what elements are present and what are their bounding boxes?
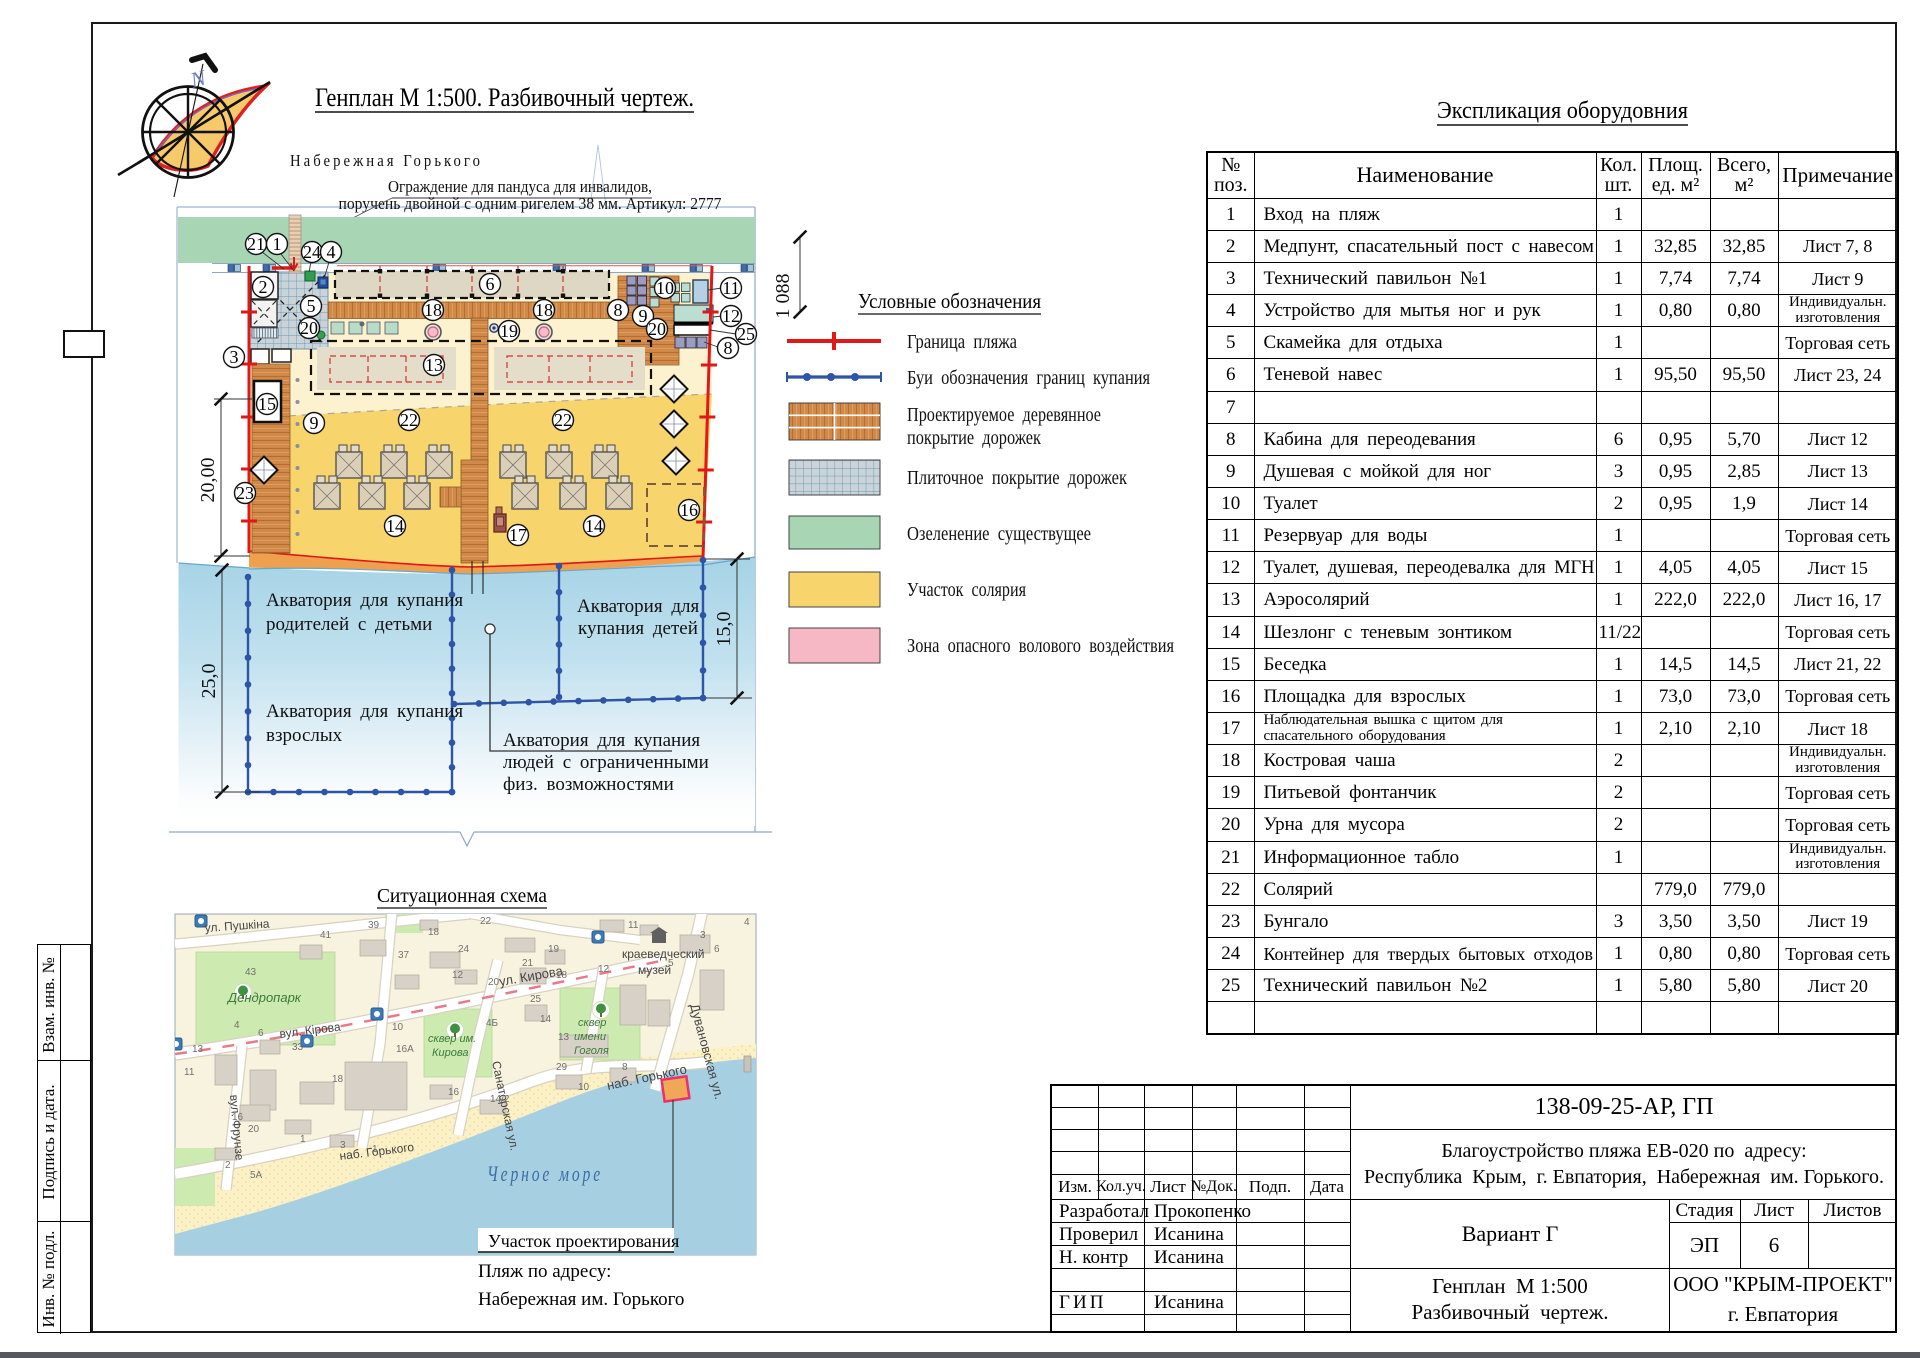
svg-text:24: 24: [458, 944, 470, 955]
svg-text:5: 5: [668, 958, 674, 969]
svg-text:10: 10: [578, 1082, 590, 1093]
svg-text:Набережная Горького: Набережная Горького: [290, 151, 483, 170]
svg-text:7: 7: [645, 970, 651, 981]
svg-text:6: 6: [258, 1028, 264, 1039]
svg-text:2: 2: [225, 1160, 231, 1171]
svg-text:Пляж по адресу:: Пляж по адресу:: [478, 1261, 611, 1282]
svg-text:людей с ограниченными: людей с ограниченными: [503, 752, 709, 773]
svg-text:4: 4: [327, 242, 336, 262]
svg-text:N: N: [187, 64, 210, 93]
svg-text:9: 9: [310, 413, 319, 433]
svg-text:15,0: 15,0: [713, 612, 735, 647]
svg-text:24: 24: [303, 242, 321, 262]
svg-text:19: 19: [500, 321, 518, 341]
svg-text:1: 1: [300, 1134, 306, 1145]
svg-text:Дендропарк: Дендропарк: [226, 990, 302, 1005]
svg-text:25,0: 25,0: [198, 664, 220, 699]
svg-text:музей: музей: [638, 963, 671, 977]
svg-text:13: 13: [425, 355, 443, 375]
svg-text:11: 11: [722, 278, 739, 298]
svg-text:14: 14: [585, 516, 603, 536]
svg-text:Условные обозначения: Условные обозначения: [858, 289, 1041, 313]
svg-text:16: 16: [680, 500, 698, 520]
svg-text:4Б: 4Б: [486, 1018, 499, 1029]
svg-text:41: 41: [320, 930, 332, 941]
svg-text:12: 12: [452, 970, 464, 981]
svg-text:22: 22: [400, 410, 418, 430]
svg-text:13: 13: [558, 1032, 570, 1043]
svg-text:сквер: сквер: [578, 1017, 606, 1029]
svg-text:4: 4: [234, 1020, 240, 1031]
svg-text:4: 4: [744, 917, 750, 928]
svg-text:3: 3: [230, 347, 239, 367]
svg-text:Акватория для купания: Акватория для купания: [266, 590, 463, 611]
svg-text:20: 20: [488, 977, 500, 988]
svg-text:8: 8: [724, 338, 733, 358]
svg-text:12: 12: [598, 964, 610, 975]
svg-text:21: 21: [522, 958, 534, 969]
svg-text:10: 10: [392, 1022, 404, 1033]
svg-text:5: 5: [307, 296, 316, 316]
svg-text:3: 3: [700, 930, 706, 941]
svg-text:1 088: 1 088: [772, 274, 794, 319]
svg-text:21: 21: [247, 234, 265, 254]
svg-text:19: 19: [548, 944, 560, 955]
svg-text:18: 18: [535, 300, 553, 320]
svg-text:Гоголя: Гоголя: [574, 1045, 609, 1057]
svg-text:20: 20: [648, 319, 666, 339]
svg-text:1: 1: [372, 1144, 378, 1155]
svg-text:25: 25: [530, 994, 542, 1005]
svg-text:17: 17: [509, 525, 527, 545]
svg-text:20,00: 20,00: [197, 458, 219, 503]
svg-text:23: 23: [236, 483, 254, 503]
svg-text:9: 9: [639, 306, 648, 326]
svg-text:Проектируемое деревянное: Проектируемое деревянное: [907, 404, 1101, 426]
svg-text:физ. возможностями: физ. возможностями: [503, 774, 674, 795]
svg-text:11: 11: [184, 1067, 195, 1078]
svg-text:Участок солярия: Участок солярия: [907, 579, 1026, 601]
svg-text:18: 18: [424, 300, 442, 320]
svg-text:Буи обозначения границ купания: Буи обозначения границ купания: [907, 367, 1150, 389]
svg-text:1: 1: [273, 234, 282, 254]
svg-text:Экспликация оборудовния: Экспликация оборудовния: [1437, 98, 1688, 124]
svg-text:5А: 5А: [250, 1170, 263, 1181]
svg-text:Акватория для купания: Акватория для купания: [266, 701, 463, 722]
svg-text:родителей с детьми: родителей с детьми: [266, 614, 432, 635]
svg-text:Набережная им. Горького: Набережная им. Горького: [478, 1289, 684, 1310]
svg-text:8: 8: [622, 1062, 628, 1073]
svg-text:Зона опасного волового воздейс: Зона опасного волового воздействия: [907, 635, 1174, 657]
svg-text:22: 22: [480, 916, 492, 927]
svg-text:22: 22: [554, 410, 572, 430]
svg-text:18: 18: [556, 970, 568, 981]
svg-text:8: 8: [614, 300, 623, 320]
svg-text:поручень двойной с одним ригел: поручень двойной с одним ригелем 38 мм. …: [339, 194, 722, 213]
svg-text:20: 20: [300, 318, 318, 338]
svg-text:39: 39: [368, 920, 380, 931]
svg-text:15: 15: [258, 394, 276, 414]
svg-text:18: 18: [332, 1074, 344, 1085]
svg-text:37: 37: [398, 950, 410, 961]
svg-text:Кирова: Кирова: [432, 1047, 468, 1059]
svg-text:Граница пляжа: Граница пляжа: [907, 331, 1017, 353]
svg-text:2: 2: [259, 277, 268, 297]
svg-text:6: 6: [714, 944, 720, 955]
svg-text:купания детей: купания детей: [578, 618, 698, 639]
svg-text:14/2: 14/2: [490, 1094, 510, 1105]
svg-text:Плиточное покрытие дорожек: Плиточное покрытие дорожек: [907, 467, 1127, 489]
svg-text:10: 10: [656, 278, 674, 298]
svg-text:16А: 16А: [396, 1044, 414, 1055]
svg-text:6: 6: [486, 274, 495, 294]
svg-text:13: 13: [192, 1044, 204, 1055]
svg-text:33: 33: [292, 1042, 304, 1053]
svg-text:25: 25: [737, 324, 755, 344]
svg-text:Озеленение существущее: Озеленение существущее: [907, 523, 1091, 545]
svg-text:Акватория для купания: Акватория для купания: [503, 730, 700, 751]
svg-text:взрослых: взрослых: [266, 725, 343, 746]
svg-text:Черное море: Черное море: [487, 1161, 603, 1186]
svg-text:покрытие дорожек: покрытие дорожек: [907, 427, 1041, 449]
svg-text:16: 16: [448, 1087, 460, 1098]
svg-text:3: 3: [340, 1140, 346, 1151]
svg-text:Акватория для: Акватория для: [577, 596, 699, 617]
svg-text:18: 18: [428, 927, 440, 938]
svg-text:11: 11: [628, 920, 639, 931]
svg-text:20: 20: [248, 1124, 260, 1135]
svg-text:Ситуационная схема: Ситуационная схема: [377, 885, 547, 907]
svg-text:Участок проектирования: Участок проектирования: [488, 1231, 679, 1251]
svg-text:сквер им.: сквер им.: [428, 1033, 476, 1045]
svg-text:имени: имени: [574, 1031, 606, 1043]
svg-text:16: 16: [232, 1112, 244, 1123]
svg-text:29: 29: [556, 1062, 568, 1073]
svg-text:краеведческий: краеведческий: [622, 947, 705, 961]
svg-text:14: 14: [540, 1014, 552, 1025]
svg-text:43: 43: [245, 967, 257, 978]
svg-text:12: 12: [722, 306, 740, 326]
svg-text:Генплан М 1:500. Разбивочный: Генплан М 1:500. Разбивочный чертеж.: [315, 83, 694, 112]
svg-text:14: 14: [386, 516, 404, 536]
